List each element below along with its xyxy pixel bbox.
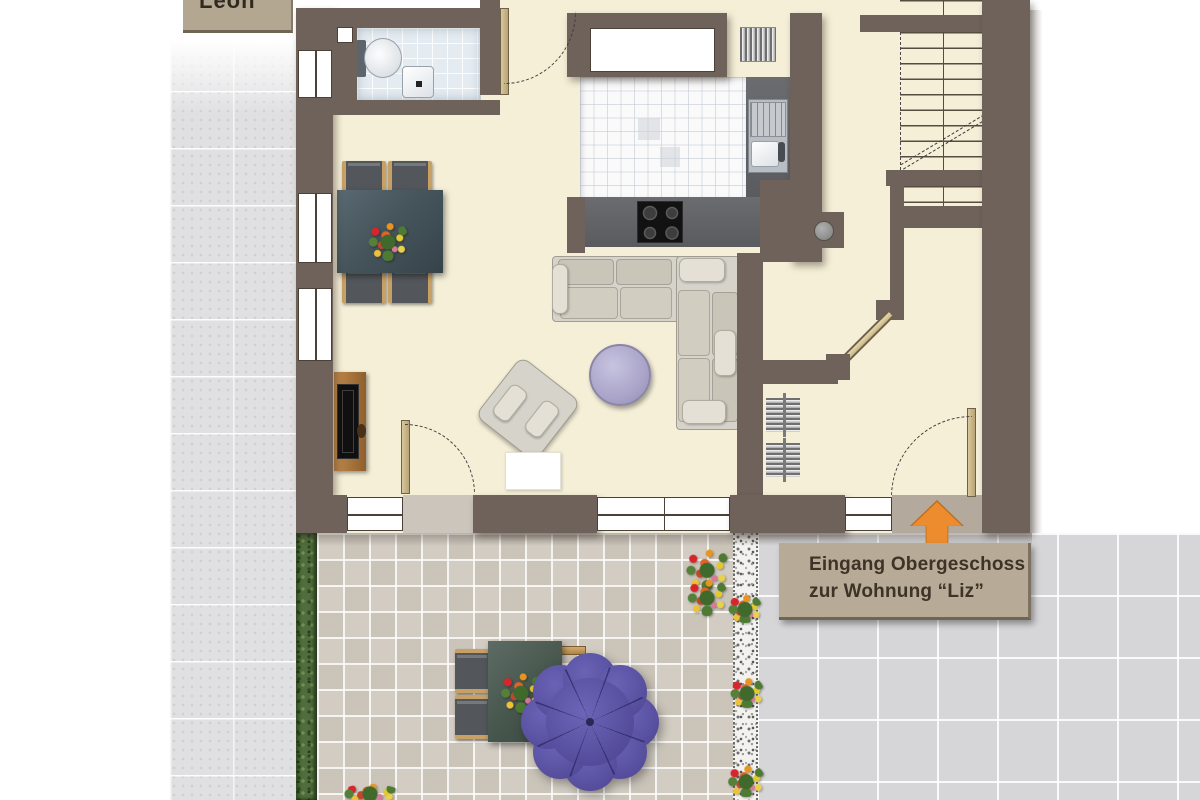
stairs-upper <box>900 0 982 15</box>
parasol-umbrella <box>522 654 658 790</box>
entrance-note-line1: Eingang Obergeschoss <box>809 552 1028 579</box>
sofa-seat-cushion <box>620 287 672 319</box>
wall-counter-end <box>567 197 585 253</box>
wall-hall-nw <box>760 180 812 262</box>
sidelight-window <box>845 497 892 531</box>
tv <box>337 384 359 459</box>
kitchen-tile-shade <box>638 118 660 140</box>
sidewalk <box>170 34 296 800</box>
wall-right <box>982 0 1030 533</box>
unit-label: Leon <box>183 0 293 33</box>
faucet <box>778 142 785 162</box>
rug <box>505 452 561 490</box>
sink-bowl <box>751 141 779 167</box>
terrace-door-threshold <box>403 495 473 533</box>
flower-cluster <box>340 784 400 800</box>
hedge-strip <box>296 533 317 800</box>
sink-drainer <box>750 102 786 137</box>
kitchen-pass-window <box>590 28 715 72</box>
flower-cluster <box>728 593 762 623</box>
flower-cluster <box>727 763 765 797</box>
coffee-table <box>589 344 651 406</box>
sofa-pillow <box>714 330 736 376</box>
wall-hall-band <box>760 360 838 384</box>
floor-plan: Leon Eingang Obergeschoss zur Wohnung “L… <box>0 0 1200 800</box>
tv-mount-knob <box>357 424 366 438</box>
wall-bathroom-right <box>480 0 500 95</box>
dining-chair <box>388 269 432 303</box>
dining-chair <box>342 269 386 303</box>
parasol-pole <box>586 718 594 726</box>
radiator <box>740 27 776 62</box>
kitchen-floor <box>580 77 746 198</box>
gravel-path <box>733 533 758 800</box>
flower-cluster <box>730 676 764 708</box>
wall-bottom <box>473 495 597 533</box>
stairs-edge-dashed <box>900 32 902 170</box>
wall-bottom-corner <box>296 495 347 533</box>
sofa-back-cushion <box>616 259 672 285</box>
kitchen-tile-shade <box>660 147 680 167</box>
window <box>298 288 332 361</box>
round-column <box>814 221 834 241</box>
wall-living-east <box>737 253 763 533</box>
unit-label-text: Leon <box>199 0 256 14</box>
wall-segment <box>900 206 982 228</box>
entrance-note-line2: zur Wohnung “Liz” <box>809 579 1028 606</box>
flower-bouquet <box>367 219 409 261</box>
wall-bay-north <box>890 184 904 306</box>
terrace-chair <box>455 649 489 693</box>
window <box>298 50 332 98</box>
wall-bottom <box>730 495 845 533</box>
terrace-chair <box>455 695 489 739</box>
flower-bed <box>686 576 728 616</box>
sofa-seat-cushion <box>678 290 710 356</box>
building-shadow <box>1030 10 1043 533</box>
radiator <box>766 398 800 432</box>
radiator <box>766 443 800 477</box>
window <box>298 193 332 263</box>
stove <box>637 201 683 243</box>
entrance-note: Eingang Obergeschoss zur Wohnung “Liz” <box>779 543 1031 620</box>
window <box>597 497 730 531</box>
duct-column <box>337 27 353 43</box>
stairs-landing <box>900 186 982 206</box>
wall-bathroom-bottom <box>333 100 500 115</box>
window <box>347 497 403 531</box>
sofa-pillow <box>682 400 726 424</box>
wall-segment <box>860 15 982 32</box>
sofa-seat-cushion <box>560 287 618 319</box>
bathroom-sink <box>402 66 434 98</box>
toilet <box>364 38 402 78</box>
sofa-pillow <box>679 258 725 282</box>
stairs-main <box>900 32 982 170</box>
sofa-pillow <box>552 264 568 314</box>
